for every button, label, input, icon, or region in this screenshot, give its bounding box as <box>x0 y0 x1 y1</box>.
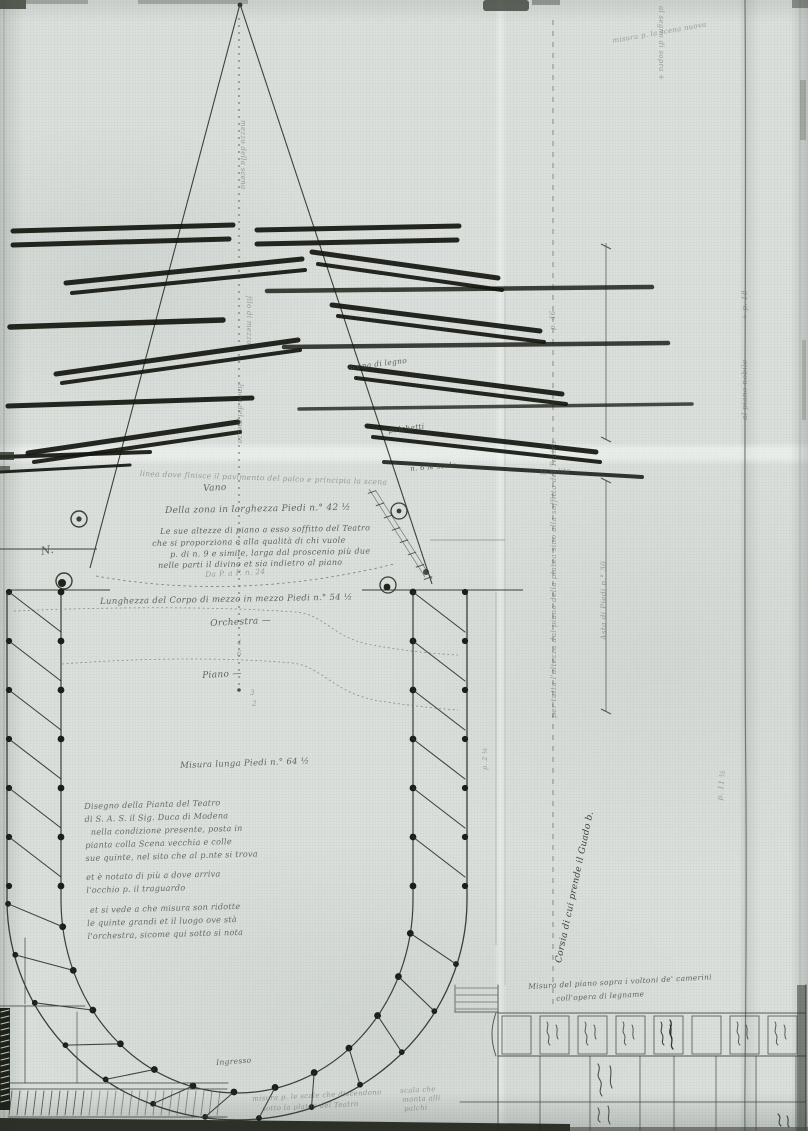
annotation-side-line: per tutta l'altezza dal piano della plat… <box>550 441 558 718</box>
annotation-fold-1: + p. 18 <box>741 290 749 320</box>
annotation-orchestra-frac-top: 4 <box>237 640 242 647</box>
annotation-nn: N. <box>40 544 55 557</box>
annotation-centerline-2: filo di mezzo <box>245 296 252 345</box>
annotation-fold-2: al piano nobile <box>741 359 749 420</box>
annotation-centerline-1: mezzo della scena <box>239 120 246 190</box>
annotation-corridor-width: p. 2 ¼ <box>482 747 489 770</box>
plan-linework <box>0 0 808 1131</box>
annotation-vano: Vano <box>203 484 227 494</box>
scanned-theatre-plan-sheet: al segno di sopra + misura p. la scena n… <box>0 0 808 1131</box>
legend-block: Disegno della Pianta del Teatro di S. A.… <box>84 795 260 942</box>
annotation-bottom-right-3: palchi <box>404 1105 428 1113</box>
annotation-top-right-vertical: al segno di sopra + <box>657 6 664 80</box>
annotation-orchestra-frac-bottom: 6 <box>237 651 242 658</box>
fold-lines <box>4 0 800 1131</box>
annotation-piano-frac-top: 3 <box>250 690 255 697</box>
annotation-centerline-3: linea del mezzo <box>236 384 243 444</box>
annotation-piano-frac-bottom: 2 <box>252 701 257 708</box>
annotation-measuring-rod: Asta di Piedi n.° 30 <box>600 561 608 640</box>
annotation-side-line-measure: p. 46 <box>550 311 557 330</box>
